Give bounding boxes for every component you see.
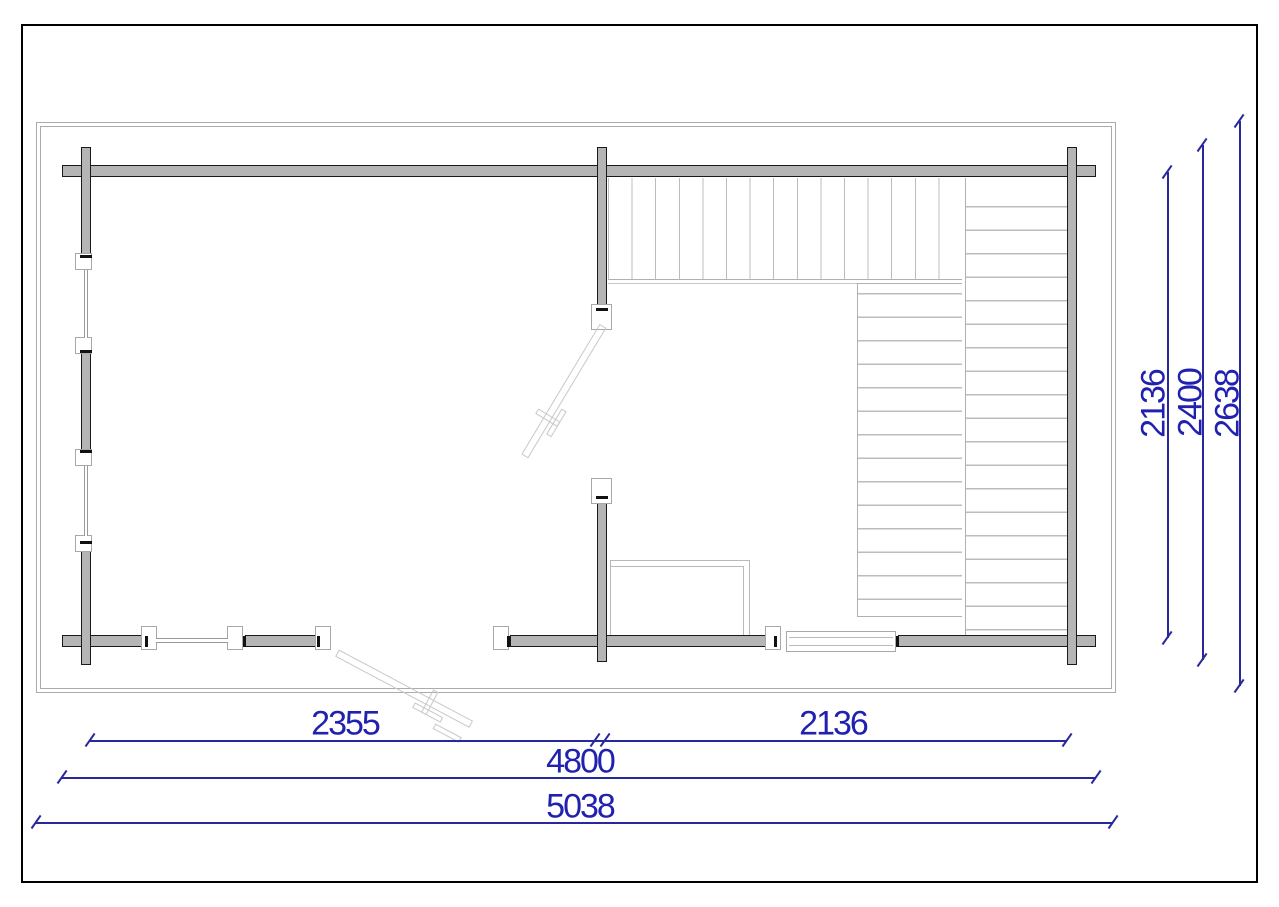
wall-joint: [1068, 636, 1076, 646]
wall-bottom-seg3: [510, 635, 778, 647]
deck-board-lines: [966, 206, 1067, 635]
door-jamb: [591, 478, 612, 504]
wall-left-seg1: [81, 147, 91, 258]
wall-left-seg2: [81, 353, 91, 453]
wall-end-cap: [80, 541, 92, 544]
window-jamb: [141, 626, 157, 650]
deck-opening-jamb: [765, 626, 781, 650]
wall-joint: [1068, 166, 1076, 176]
wall-end-cap: [80, 450, 92, 453]
wall-end-cap: [507, 636, 510, 647]
wall-end-cap: [896, 636, 899, 647]
dimension-label-2638-right: 2638: [1209, 370, 1248, 438]
bench-outline: [610, 560, 750, 636]
deck-board-lines: [858, 293, 962, 616]
wall-joint: [598, 636, 606, 646]
wall-end-cap: [243, 636, 246, 647]
wall-right: [1067, 147, 1077, 665]
deck-step-lines: [789, 637, 893, 646]
wall-end-cap: [145, 636, 148, 647]
dimension-label-5038: 5038: [546, 788, 614, 827]
dimension-label-4800: 4800: [546, 743, 614, 782]
window-left-2: [84, 466, 88, 536]
window-bottom: [156, 638, 228, 643]
wall-end-cap: [80, 350, 92, 353]
window-left-1: [84, 270, 88, 338]
wall-joint: [82, 636, 90, 646]
wall-bottom-seg1: [62, 635, 148, 647]
wall-joint: [598, 166, 606, 176]
wall-bottom-seg2: [245, 635, 320, 647]
dimension-label-2136-bottom: 2136: [799, 705, 867, 744]
dimension-label-2136-right: 2136: [1135, 370, 1174, 438]
deck-boards-right: [965, 178, 1067, 635]
wall-end-cap: [80, 255, 92, 258]
dimension-label-2400-right: 2400: [1172, 369, 1211, 437]
wall-top: [62, 165, 1096, 177]
deck-boards-middle: [857, 283, 962, 617]
window-jamb: [227, 626, 243, 650]
wall-end-cap: [774, 636, 777, 647]
wall-joint: [82, 166, 90, 176]
deck-boards-top: [608, 178, 962, 280]
deck-step: [786, 631, 896, 652]
wall-left-seg3: [81, 544, 91, 665]
bench-inner-line: [611, 566, 744, 635]
floor-plan-canvas: 2355 2136 4800 5038 2136 2400 2638: [0, 0, 1279, 907]
wall-end-cap: [317, 636, 320, 647]
wall-end-cap: [596, 308, 608, 311]
wall-end-cap: [596, 496, 608, 499]
dimension-label-2355: 2355: [311, 705, 379, 744]
